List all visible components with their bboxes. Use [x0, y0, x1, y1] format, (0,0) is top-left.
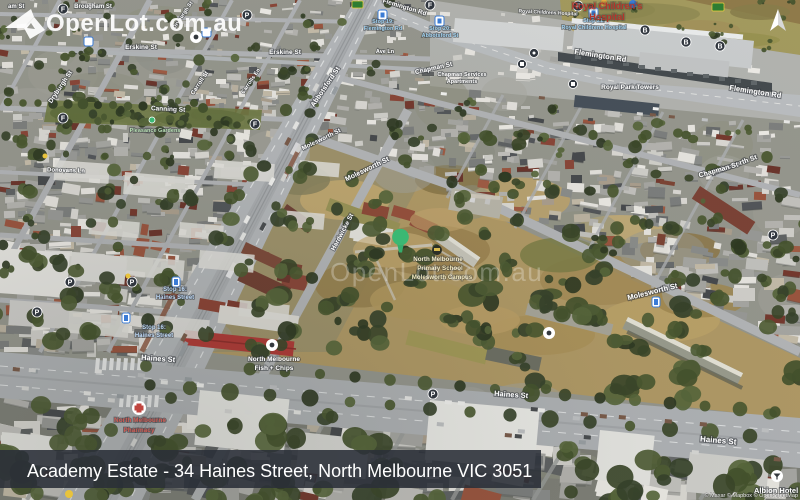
svg-text:P: P [771, 233, 776, 240]
svg-text:B: B [683, 40, 688, 47]
svg-text:Haines Street: Haines Street [135, 333, 173, 339]
svg-text:Fish + Chips: Fish + Chips [255, 365, 294, 372]
svg-text:Apartments: Apartments [447, 79, 478, 85]
svg-text:F: F [253, 122, 258, 129]
svg-text:Hospital: Hospital [589, 12, 625, 22]
svg-text:Stop 16:: Stop 16: [163, 287, 187, 293]
svg-text:P: P [130, 280, 135, 287]
svg-text:© Maxar © Mapbox © OpenStreetM: © Maxar © Mapbox © OpenStreetMap [705, 492, 798, 499]
svg-text:Pharmacy: Pharmacy [123, 427, 154, 434]
svg-text:F: F [428, 3, 433, 10]
svg-text:am St: am St [8, 4, 24, 10]
svg-text:Erskine St: Erskine St [269, 49, 302, 56]
svg-text:P: P [35, 310, 40, 317]
svg-text:Haines Street: Haines Street [156, 295, 194, 301]
svg-text:Royal Children's: Royal Children's [572, 1, 643, 11]
svg-text:North Melbourne: North Melbourne [248, 356, 300, 363]
svg-text:Chapman Services: Chapman Services [437, 72, 486, 78]
svg-text:F: F [61, 116, 66, 123]
svg-text:Abbotsford St: Abbotsford St [422, 33, 459, 39]
svg-text:OpenLot.com.au: OpenLot.com.au [46, 10, 242, 37]
svg-text:P: P [68, 280, 73, 287]
svg-text:Stop 16:: Stop 16: [142, 325, 166, 331]
svg-text:Royal Childrens Hospital: Royal Childrens Hospital [561, 25, 627, 31]
svg-text:Stop 20:: Stop 20: [429, 26, 451, 32]
svg-text:Erskine St: Erskine St [125, 44, 158, 51]
svg-text:OpenLot.com.au: OpenLot.com.au [330, 257, 543, 287]
svg-text:Flemington Rd: Flemington Rd [364, 26, 403, 32]
svg-text:P: P [245, 13, 250, 20]
svg-text:B: B [717, 44, 722, 51]
svg-text:North Melbourne: North Melbourne [114, 417, 166, 424]
svg-text:B: B [642, 28, 647, 35]
svg-text:Pleasance Gardens: Pleasance Gardens [130, 128, 181, 134]
svg-text:Academy Estate - 34 Haines Str: Academy Estate - 34 Haines Street, North… [27, 461, 532, 481]
svg-text:Stop 19:: Stop 19: [372, 19, 394, 25]
svg-text:Royal Park Towers: Royal Park Towers [601, 84, 659, 91]
svg-text:P: P [431, 392, 436, 399]
svg-text:Ave Ln: Ave Ln [376, 49, 395, 55]
